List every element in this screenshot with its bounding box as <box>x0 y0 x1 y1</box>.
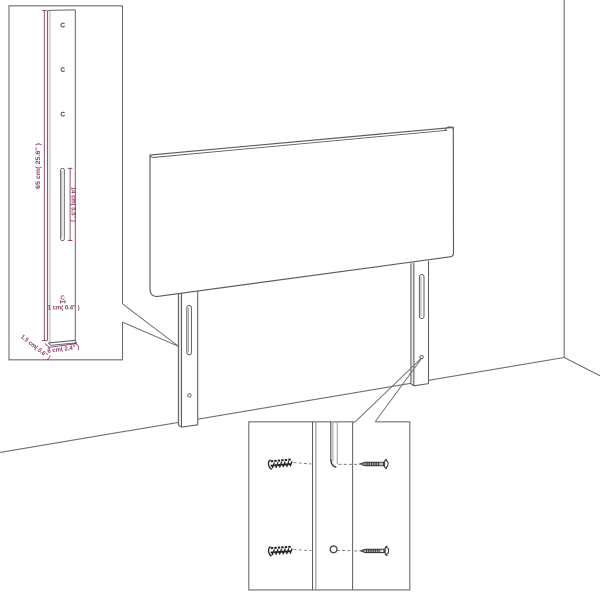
svg-text:14 cm( 5.5'' ): 14 cm( 5.5'' ) <box>70 187 77 222</box>
svg-text:1 cm( 0.4'' ): 1 cm( 0.4'' ) <box>48 304 80 311</box>
svg-text:65 cm( 25.6'' ): 65 cm( 25.6'' ) <box>35 143 42 189</box>
